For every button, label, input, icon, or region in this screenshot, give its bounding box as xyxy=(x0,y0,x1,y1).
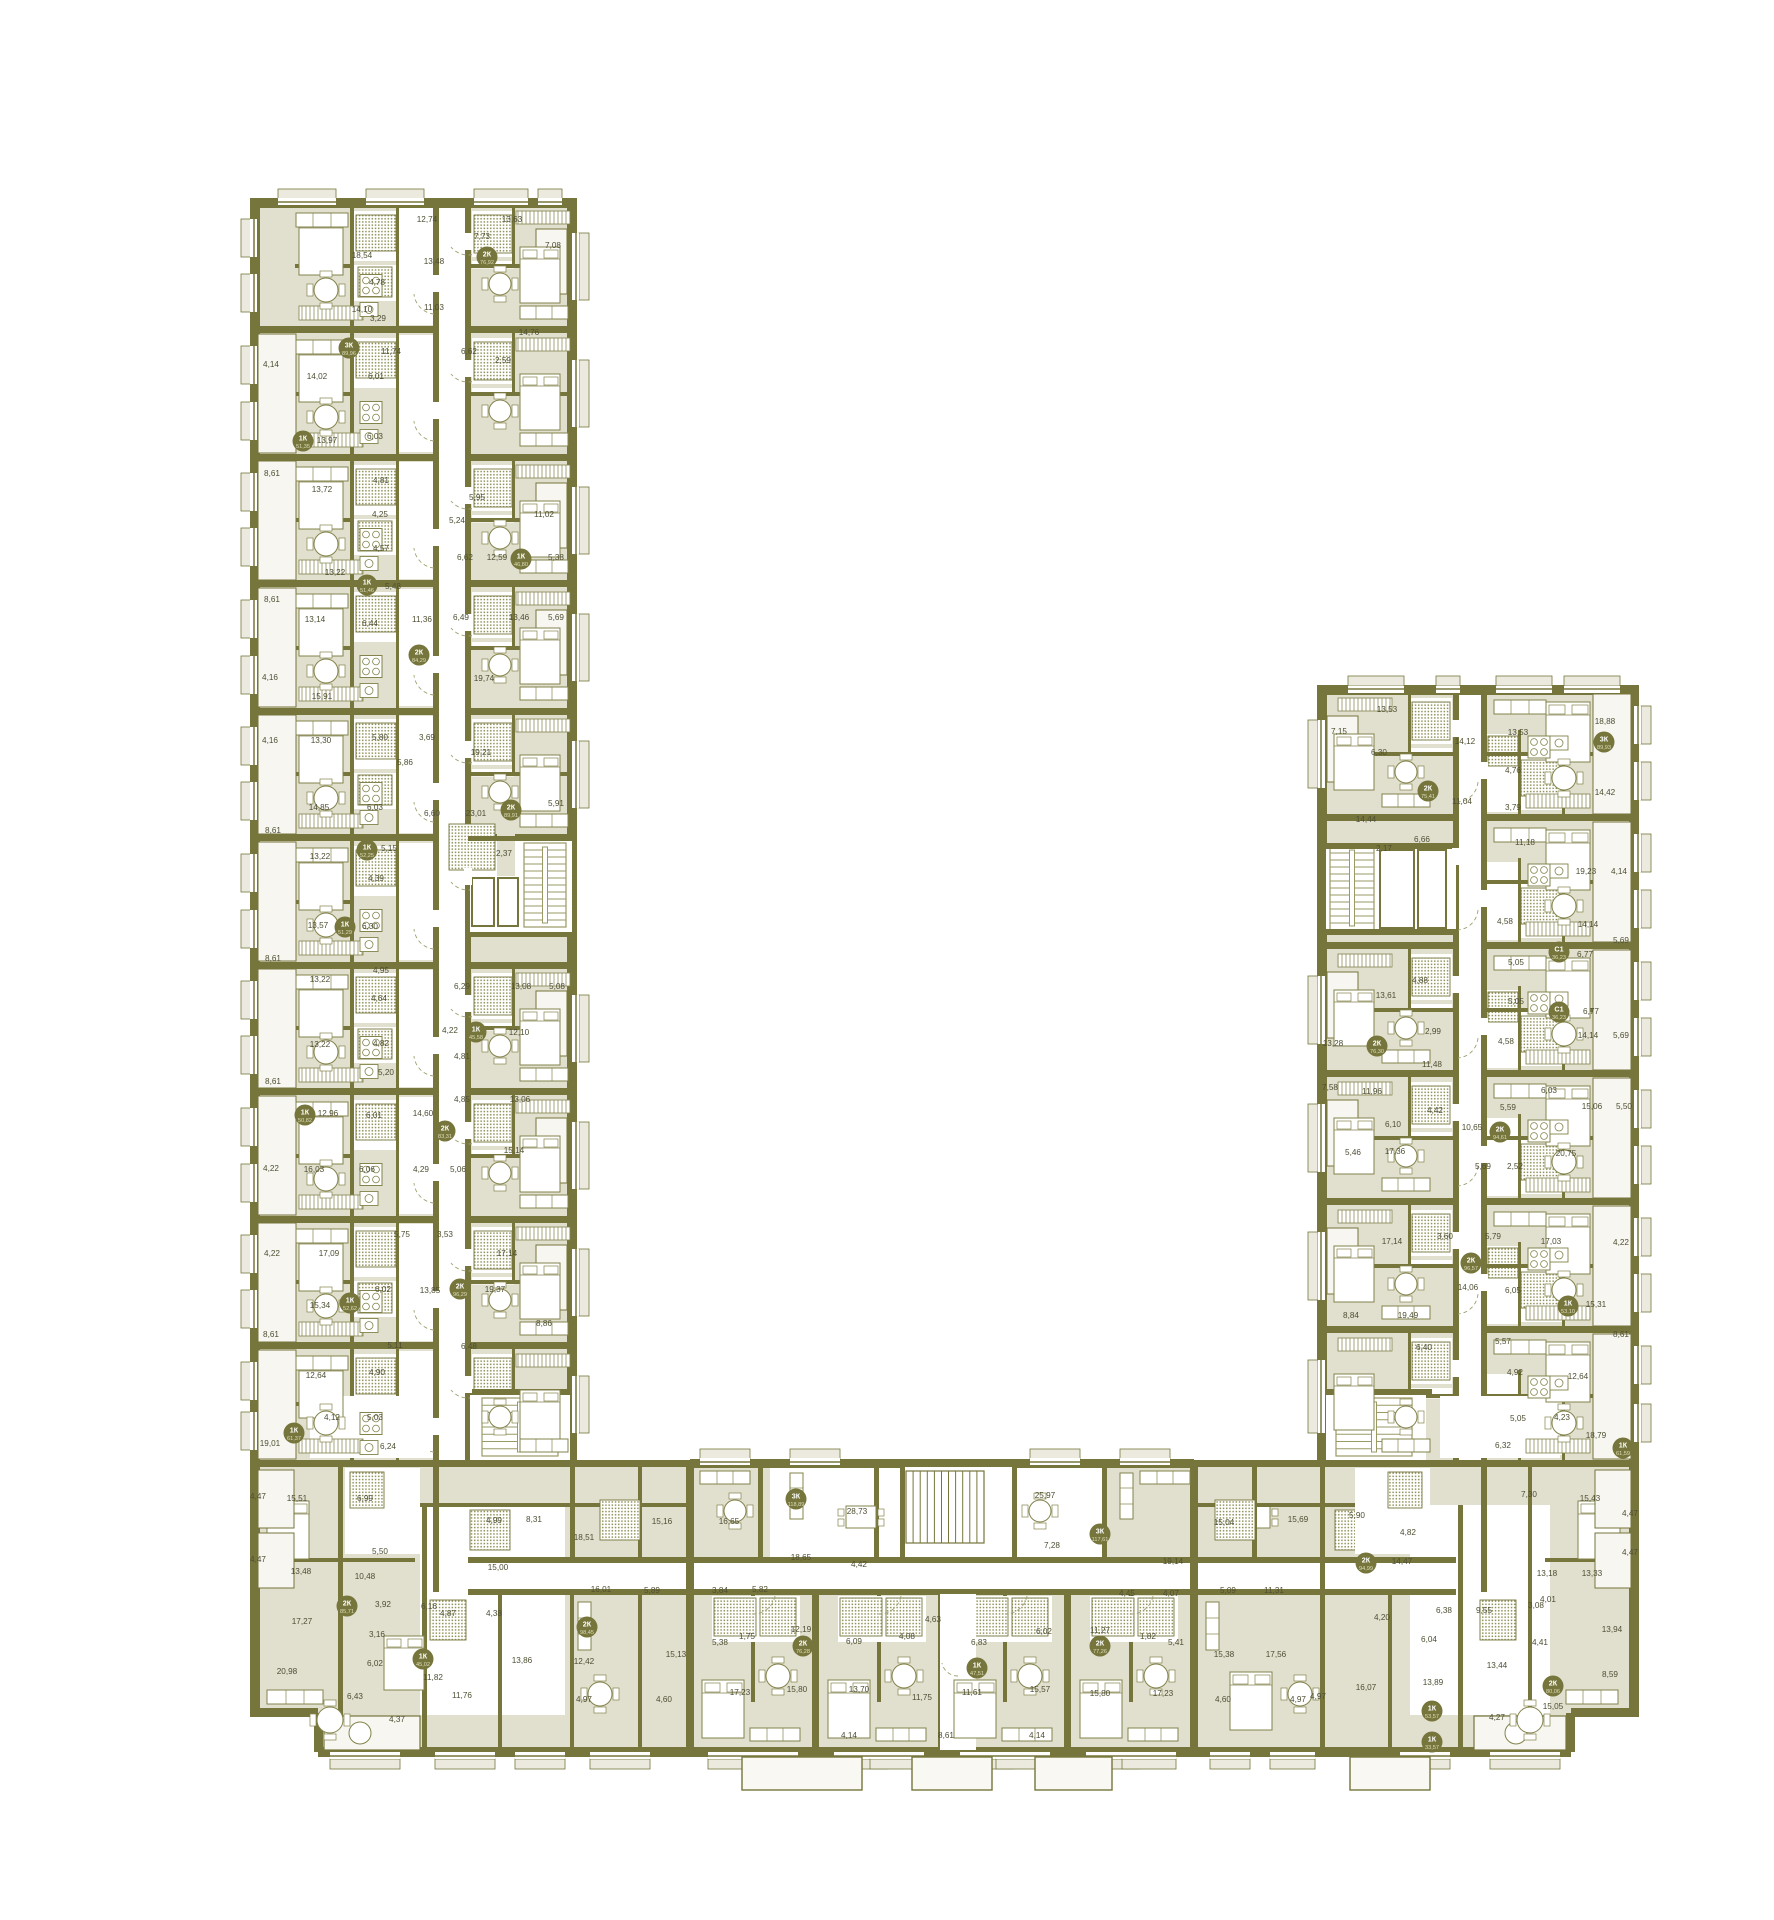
svg-text:4,27: 4,27 xyxy=(1489,1713,1505,1722)
svg-text:15,16: 15,16 xyxy=(652,1517,673,1526)
svg-text:1К: 1К xyxy=(290,1426,299,1435)
svg-text:13,08: 13,08 xyxy=(511,982,532,991)
svg-text:5,11: 5,11 xyxy=(387,1341,403,1350)
svg-text:6,49: 6,49 xyxy=(453,613,469,622)
svg-text:13,94: 13,94 xyxy=(1602,1625,1623,1634)
svg-text:14,14: 14,14 xyxy=(1578,920,1599,929)
svg-text:12,59: 12,59 xyxy=(487,553,508,562)
svg-text:28,73: 28,73 xyxy=(847,1507,868,1516)
svg-text:6,03: 6,03 xyxy=(1541,1086,1557,1095)
svg-text:14,12: 14,12 xyxy=(1455,737,1476,746)
svg-text:6,43: 6,43 xyxy=(347,1692,363,1701)
svg-text:4,22: 4,22 xyxy=(264,1249,280,1258)
svg-text:5,75: 5,75 xyxy=(394,1230,410,1239)
svg-text:51,29: 51,29 xyxy=(338,930,352,936)
svg-text:10,65: 10,65 xyxy=(1462,1123,1483,1132)
svg-text:4,22: 4,22 xyxy=(263,1164,279,1173)
svg-text:14,06: 14,06 xyxy=(1458,1283,1479,1292)
svg-text:4,63: 4,63 xyxy=(925,1615,941,1624)
svg-text:4,87: 4,87 xyxy=(440,1609,456,1618)
svg-text:76,92: 76,92 xyxy=(480,260,494,266)
svg-text:15,57: 15,57 xyxy=(1030,1685,1051,1694)
svg-text:6,04: 6,04 xyxy=(1421,1635,1437,1644)
svg-text:17,23: 17,23 xyxy=(730,1688,751,1697)
svg-text:3,79: 3,79 xyxy=(1505,803,1521,812)
svg-text:14,44: 14,44 xyxy=(1356,815,1377,824)
svg-text:77,26: 77,26 xyxy=(1093,1649,1107,1655)
svg-text:4,39: 4,39 xyxy=(368,874,384,883)
svg-text:11,31: 11,31 xyxy=(1264,1586,1284,1595)
svg-text:61,59: 61,59 xyxy=(1616,1451,1630,1457)
svg-text:13,53: 13,53 xyxy=(1508,728,1529,737)
svg-text:89,93: 89,93 xyxy=(1597,745,1611,751)
svg-text:6,02: 6,02 xyxy=(367,1659,383,1668)
svg-text:13,48: 13,48 xyxy=(424,257,445,266)
svg-text:4,25: 4,25 xyxy=(372,510,388,519)
svg-text:8,61: 8,61 xyxy=(263,1330,279,1339)
svg-text:2К: 2К xyxy=(1362,1556,1371,1565)
svg-text:4,41: 4,41 xyxy=(1532,1638,1548,1647)
svg-text:10,48: 10,48 xyxy=(355,1572,376,1581)
svg-text:17,36: 17,36 xyxy=(1385,1147,1406,1156)
svg-text:1К: 1К xyxy=(346,1296,355,1305)
svg-text:2К: 2К xyxy=(1549,1679,1558,1688)
svg-text:4,81: 4,81 xyxy=(373,476,389,485)
svg-text:11,03: 11,03 xyxy=(424,303,444,312)
svg-text:1,82: 1,82 xyxy=(1140,1632,1156,1641)
svg-text:2К: 2К xyxy=(583,1620,592,1629)
svg-text:4,14: 4,14 xyxy=(263,360,279,369)
svg-text:5,50: 5,50 xyxy=(1616,1102,1632,1111)
svg-text:7,15: 7,15 xyxy=(1331,727,1347,736)
svg-text:117,61: 117,61 xyxy=(1092,1537,1109,1543)
svg-text:4,85: 4,85 xyxy=(454,1095,470,1104)
svg-text:45,58: 45,58 xyxy=(469,1035,483,1041)
svg-text:5,89: 5,89 xyxy=(644,1586,660,1595)
svg-text:5,09: 5,09 xyxy=(1220,1586,1236,1595)
svg-text:6,40: 6,40 xyxy=(1416,1343,1432,1352)
svg-text:6,99: 6,99 xyxy=(357,1494,373,1503)
svg-text:3,16: 3,16 xyxy=(369,1630,385,1639)
svg-text:6,01: 6,01 xyxy=(368,372,384,381)
svg-text:6,10: 6,10 xyxy=(1385,1120,1401,1129)
svg-text:4,23: 4,23 xyxy=(1554,1413,1570,1422)
svg-text:15,38: 15,38 xyxy=(1214,1650,1235,1659)
svg-text:5,69: 5,69 xyxy=(1475,1162,1491,1171)
svg-text:20,75: 20,75 xyxy=(1556,1149,1577,1158)
svg-text:11,36: 11,36 xyxy=(412,615,432,624)
svg-text:11,48: 11,48 xyxy=(1422,1060,1442,1069)
svg-text:4,58: 4,58 xyxy=(1498,1037,1514,1046)
svg-text:12,64: 12,64 xyxy=(1568,1372,1589,1381)
svg-text:17,23: 17,23 xyxy=(1153,1689,1174,1698)
svg-text:4,42: 4,42 xyxy=(851,1560,867,1569)
svg-text:4,90: 4,90 xyxy=(369,1368,385,1377)
svg-text:4,07: 4,07 xyxy=(1163,1589,1179,1598)
svg-text:16,65: 16,65 xyxy=(719,1517,740,1526)
svg-text:13,18: 13,18 xyxy=(1537,1569,1558,1578)
svg-text:9,55: 9,55 xyxy=(1476,1606,1492,1615)
svg-text:5,06: 5,06 xyxy=(450,1165,466,1174)
svg-text:5,59: 5,59 xyxy=(1500,1103,1516,1112)
svg-text:5,91: 5,91 xyxy=(548,799,564,808)
svg-text:6,30: 6,30 xyxy=(1371,748,1387,757)
svg-text:36,23: 36,23 xyxy=(1552,1015,1566,1021)
svg-text:1К: 1К xyxy=(363,578,372,587)
svg-text:13,48: 13,48 xyxy=(291,1567,312,1576)
svg-text:4,29: 4,29 xyxy=(413,1165,429,1174)
svg-text:8,61: 8,61 xyxy=(1613,1330,1629,1339)
svg-text:19,74: 19,74 xyxy=(474,674,495,683)
svg-text:6,77: 6,77 xyxy=(1583,1007,1599,1016)
svg-text:4,78: 4,78 xyxy=(369,278,385,287)
svg-text:1К: 1К xyxy=(301,1108,310,1117)
svg-text:4,81: 4,81 xyxy=(454,1052,470,1061)
svg-text:5,46: 5,46 xyxy=(1345,1148,1361,1157)
svg-text:4,82: 4,82 xyxy=(1400,1528,1416,1537)
svg-text:76,28: 76,28 xyxy=(796,1649,810,1655)
svg-text:6,30: 6,30 xyxy=(362,922,378,931)
svg-text:50,82: 50,82 xyxy=(298,1118,312,1124)
svg-text:3,69: 3,69 xyxy=(419,733,435,742)
svg-text:2К: 2К xyxy=(1424,784,1433,793)
svg-text:16,03: 16,03 xyxy=(304,1165,325,1174)
svg-text:61,37: 61,37 xyxy=(287,1436,301,1442)
svg-text:2К: 2К xyxy=(441,1124,450,1133)
svg-text:4,14: 4,14 xyxy=(1611,867,1627,876)
svg-text:2,17: 2,17 xyxy=(1376,844,1392,853)
svg-text:15,43: 15,43 xyxy=(1580,1494,1601,1503)
svg-text:5,41: 5,41 xyxy=(1168,1638,1184,1647)
svg-text:7,28: 7,28 xyxy=(1044,1541,1060,1550)
svg-text:4,37: 4,37 xyxy=(389,1715,405,1724)
svg-text:76,30: 76,30 xyxy=(1370,1049,1384,1055)
svg-text:4,47: 4,47 xyxy=(250,1555,266,1564)
svg-text:3,60: 3,60 xyxy=(1437,1232,1453,1241)
svg-text:5,95: 5,95 xyxy=(469,493,485,502)
svg-text:2К: 2К xyxy=(1467,1256,1476,1265)
svg-text:16,07: 16,07 xyxy=(1356,1683,1377,1692)
svg-text:5,57: 5,57 xyxy=(1495,1337,1511,1346)
svg-text:4,60: 4,60 xyxy=(656,1695,672,1704)
svg-text:13,53: 13,53 xyxy=(1377,705,1398,714)
svg-text:8,31: 8,31 xyxy=(526,1515,542,1524)
svg-text:12,42: 12,42 xyxy=(574,1657,595,1666)
svg-text:6,32: 6,32 xyxy=(1495,1441,1511,1450)
svg-text:4,22: 4,22 xyxy=(1613,1238,1629,1247)
svg-text:12,96: 12,96 xyxy=(318,1109,339,1118)
svg-text:1К: 1К xyxy=(341,920,350,929)
svg-text:5,79: 5,79 xyxy=(1485,1232,1501,1241)
svg-text:17,03: 17,03 xyxy=(1541,1237,1562,1246)
svg-text:4,97: 4,97 xyxy=(1310,1692,1326,1701)
svg-text:15,05: 15,05 xyxy=(1543,1702,1564,1711)
svg-text:47,51: 47,51 xyxy=(970,1671,984,1677)
svg-text:45,02: 45,02 xyxy=(416,1662,430,1668)
svg-text:2,59: 2,59 xyxy=(495,356,511,365)
svg-text:4,14: 4,14 xyxy=(1029,1731,1045,1740)
svg-text:11,82: 11,82 xyxy=(423,1673,443,1682)
svg-text:5,90: 5,90 xyxy=(1349,1511,1365,1520)
svg-text:17,14: 17,14 xyxy=(1382,1237,1403,1246)
svg-text:15,69: 15,69 xyxy=(1288,1515,1309,1524)
svg-text:14,10: 14,10 xyxy=(352,305,373,314)
svg-text:6,60: 6,60 xyxy=(424,809,440,818)
svg-text:36,23: 36,23 xyxy=(1552,955,1566,961)
svg-text:19,01: 19,01 xyxy=(260,1439,281,1448)
svg-text:5,24: 5,24 xyxy=(449,516,465,525)
svg-text:2,52: 2,52 xyxy=(1507,1162,1523,1171)
svg-text:6,62: 6,62 xyxy=(457,553,473,562)
svg-text:13,46: 13,46 xyxy=(509,613,530,622)
svg-text:15,06: 15,06 xyxy=(1582,1102,1603,1111)
svg-text:6,62: 6,62 xyxy=(461,347,477,356)
svg-text:17,27: 17,27 xyxy=(292,1617,313,1626)
svg-text:19,21: 19,21 xyxy=(471,748,492,757)
svg-text:8,61: 8,61 xyxy=(265,826,281,835)
svg-text:3К: 3К xyxy=(345,341,354,350)
svg-text:3,53: 3,53 xyxy=(437,1230,453,1239)
svg-text:5,38: 5,38 xyxy=(548,553,564,562)
svg-text:5,69: 5,69 xyxy=(1613,1031,1629,1040)
svg-text:5,05: 5,05 xyxy=(1508,997,1524,1006)
svg-text:15,34: 15,34 xyxy=(310,1301,331,1310)
svg-text:13,89: 13,89 xyxy=(1423,1678,1444,1687)
svg-text:6,38: 6,38 xyxy=(1436,1606,1452,1615)
svg-text:3К: 3К xyxy=(1096,1527,1105,1536)
svg-text:18,54: 18,54 xyxy=(352,251,373,260)
svg-text:4,08: 4,08 xyxy=(899,1632,915,1641)
svg-text:13,28: 13,28 xyxy=(1323,1039,1344,1048)
svg-text:7,08: 7,08 xyxy=(545,241,561,250)
svg-text:4,95: 4,95 xyxy=(373,966,389,975)
svg-text:8,61: 8,61 xyxy=(265,954,281,963)
svg-text:6,29: 6,29 xyxy=(454,982,470,991)
svg-text:8,61: 8,61 xyxy=(938,1731,954,1740)
svg-text:13,57: 13,57 xyxy=(308,921,329,930)
svg-text:1К: 1К xyxy=(1619,1441,1628,1450)
svg-text:51,35: 51,35 xyxy=(296,444,310,450)
svg-text:5,38: 5,38 xyxy=(712,1638,728,1647)
svg-text:18,88: 18,88 xyxy=(1595,717,1616,726)
svg-text:1К: 1К xyxy=(299,434,308,443)
svg-text:15,00: 15,00 xyxy=(488,1563,509,1572)
svg-text:23,01: 23,01 xyxy=(466,809,487,818)
svg-text:5,82: 5,82 xyxy=(752,1585,768,1594)
svg-text:14,76: 14,76 xyxy=(519,328,540,337)
svg-text:4,20: 4,20 xyxy=(1374,1613,1390,1622)
svg-text:3,29: 3,29 xyxy=(370,314,386,323)
svg-text:15,14: 15,14 xyxy=(504,1146,525,1155)
svg-text:4,38: 4,38 xyxy=(486,1609,502,1618)
svg-text:3,84: 3,84 xyxy=(712,1586,728,1595)
svg-text:6,16: 6,16 xyxy=(421,1602,437,1611)
svg-text:13,06: 13,06 xyxy=(510,1095,531,1104)
svg-text:2К: 2К xyxy=(483,250,492,259)
svg-text:2,99: 2,99 xyxy=(1425,1027,1441,1036)
svg-text:6,03: 6,03 xyxy=(367,803,383,812)
svg-text:4,16: 4,16 xyxy=(262,736,278,745)
svg-text:51,46: 51,46 xyxy=(360,588,374,594)
svg-text:20,98: 20,98 xyxy=(277,1667,298,1676)
svg-text:14,02: 14,02 xyxy=(307,372,328,381)
svg-text:16,01: 16,01 xyxy=(591,1585,612,1594)
svg-text:12,64: 12,64 xyxy=(306,1371,327,1380)
svg-text:15,31: 15,31 xyxy=(1586,1300,1607,1309)
svg-text:94,99: 94,99 xyxy=(1359,1566,1373,1572)
svg-text:5,15: 5,15 xyxy=(381,844,397,853)
svg-text:1К: 1К xyxy=(472,1025,481,1034)
svg-text:2К: 2К xyxy=(1373,1039,1382,1048)
svg-text:4,57: 4,57 xyxy=(373,544,389,553)
svg-text:17,56: 17,56 xyxy=(1266,1650,1287,1659)
svg-text:5,80: 5,80 xyxy=(372,733,388,742)
svg-text:89,96: 89,96 xyxy=(342,351,356,357)
svg-text:8,84: 8,84 xyxy=(1343,1311,1359,1320)
svg-text:6,06: 6,06 xyxy=(359,1165,375,1174)
svg-text:15,80: 15,80 xyxy=(787,1685,808,1694)
svg-text:1К: 1К xyxy=(973,1661,982,1670)
svg-text:18,65: 18,65 xyxy=(791,1553,812,1562)
svg-text:6,09: 6,09 xyxy=(846,1637,862,1646)
svg-text:13,22: 13,22 xyxy=(325,568,346,577)
svg-text:1К: 1К xyxy=(1428,1704,1437,1713)
svg-text:5,86: 5,86 xyxy=(397,758,413,767)
svg-text:5,69: 5,69 xyxy=(1613,936,1629,945)
svg-text:4,97: 4,97 xyxy=(1290,1695,1306,1704)
svg-text:4,64: 4,64 xyxy=(371,994,387,1003)
svg-text:5,50: 5,50 xyxy=(372,1547,388,1556)
svg-text:17,14: 17,14 xyxy=(497,1249,518,1258)
svg-text:4,92: 4,92 xyxy=(1507,1368,1523,1377)
svg-text:19,23: 19,23 xyxy=(1576,867,1597,876)
svg-text:8,61: 8,61 xyxy=(264,595,280,604)
svg-text:8,61: 8,61 xyxy=(264,469,280,478)
svg-text:4,12: 4,12 xyxy=(324,1413,340,1422)
svg-text:2К: 2К xyxy=(415,648,424,657)
svg-text:4,22: 4,22 xyxy=(442,1026,458,1035)
svg-text:1,75: 1,75 xyxy=(739,1632,755,1641)
svg-text:5,48: 5,48 xyxy=(385,582,401,591)
svg-text:3К: 3К xyxy=(792,1492,801,1501)
svg-text:2К: 2К xyxy=(507,803,516,812)
svg-text:14,42: 14,42 xyxy=(1595,788,1616,797)
svg-text:4,14: 4,14 xyxy=(841,1731,857,1740)
svg-text:19,37: 19,37 xyxy=(485,1285,506,1294)
svg-text:4,76: 4,76 xyxy=(1505,766,1521,775)
svg-text:52,62: 52,62 xyxy=(343,1306,357,1312)
svg-text:4,47: 4,47 xyxy=(250,1492,266,1501)
svg-text:2К: 2К xyxy=(343,1599,352,1608)
svg-text:5,05: 5,05 xyxy=(1508,958,1524,967)
svg-text:96,57: 96,57 xyxy=(1464,1266,1478,1272)
svg-text:7,30: 7,30 xyxy=(1521,1490,1537,1499)
svg-text:13,30: 13,30 xyxy=(311,736,332,745)
svg-text:14,47: 14,47 xyxy=(1392,1557,1413,1566)
svg-text:4,88: 4,88 xyxy=(1412,976,1428,985)
svg-text:2,37: 2,37 xyxy=(496,849,512,858)
svg-text:19,49: 19,49 xyxy=(1398,1311,1419,1320)
svg-text:84,29: 84,29 xyxy=(412,658,426,664)
svg-text:6,02: 6,02 xyxy=(1036,1627,1052,1636)
svg-text:4,82: 4,82 xyxy=(373,1039,389,1048)
svg-text:13,61: 13,61 xyxy=(1376,991,1397,1000)
svg-text:2К: 2К xyxy=(1096,1639,1105,1648)
svg-text:1К: 1К xyxy=(517,552,526,561)
svg-text:13,97: 13,97 xyxy=(317,436,338,445)
svg-text:11,02: 11,02 xyxy=(534,510,554,519)
svg-text:98,45: 98,45 xyxy=(580,1630,594,1636)
svg-text:15,13: 15,13 xyxy=(666,1650,687,1659)
svg-text:2К: 2К xyxy=(1496,1125,1505,1134)
svg-text:6,77: 6,77 xyxy=(1577,950,1593,959)
svg-text:4,01: 4,01 xyxy=(1540,1595,1556,1604)
svg-text:3К: 3К xyxy=(1600,735,1609,744)
svg-text:19,14: 19,14 xyxy=(1163,1557,1184,1566)
svg-text:6,66: 6,66 xyxy=(1414,835,1430,844)
svg-text:6,01: 6,01 xyxy=(366,1111,382,1120)
svg-text:96,29: 96,29 xyxy=(453,1292,467,1298)
svg-text:8,61: 8,61 xyxy=(265,1077,281,1086)
svg-text:5,03: 5,03 xyxy=(367,1413,383,1422)
svg-text:11,75: 11,75 xyxy=(912,1693,932,1702)
svg-text:18,51: 18,51 xyxy=(574,1533,595,1542)
svg-text:3,92: 3,92 xyxy=(375,1600,391,1609)
svg-text:15,91: 15,91 xyxy=(312,692,333,701)
svg-text:11,74: 11,74 xyxy=(381,347,401,356)
svg-text:15,51: 15,51 xyxy=(287,1494,308,1503)
svg-text:4,99: 4,99 xyxy=(486,1516,502,1525)
svg-text:2К: 2К xyxy=(456,1282,465,1291)
svg-text:13,22: 13,22 xyxy=(310,1040,331,1049)
svg-text:94,61: 94,61 xyxy=(1493,1135,1507,1141)
svg-text:13,70: 13,70 xyxy=(849,1685,870,1694)
svg-text:14,85: 14,85 xyxy=(309,803,330,812)
svg-text:14,14: 14,14 xyxy=(1578,1031,1599,1040)
svg-text:11,18: 11,18 xyxy=(1515,838,1535,847)
svg-text:5,69: 5,69 xyxy=(548,613,564,622)
svg-text:52,25: 52,25 xyxy=(360,853,374,859)
svg-text:С1: С1 xyxy=(1554,1005,1563,1014)
svg-text:4,45: 4,45 xyxy=(1119,1589,1135,1598)
svg-text:13,22: 13,22 xyxy=(310,975,331,984)
svg-text:15,80: 15,80 xyxy=(1090,1689,1111,1698)
svg-text:33,57: 33,57 xyxy=(1425,1745,1439,1751)
svg-text:7,73: 7,73 xyxy=(474,232,490,241)
svg-text:С1: С1 xyxy=(1554,945,1563,954)
svg-text:25,97: 25,97 xyxy=(1035,1491,1056,1500)
svg-text:17,09: 17,09 xyxy=(319,1249,340,1258)
svg-text:13,72: 13,72 xyxy=(312,485,333,494)
svg-text:13,86: 13,86 xyxy=(512,1656,533,1665)
svg-text:6,83: 6,83 xyxy=(971,1638,987,1647)
svg-text:12,74: 12,74 xyxy=(417,215,438,224)
svg-text:4,42: 4,42 xyxy=(1427,1106,1443,1115)
svg-text:4,16: 4,16 xyxy=(262,673,278,682)
svg-text:53,10: 53,10 xyxy=(1561,1309,1575,1315)
svg-text:80,06: 80,06 xyxy=(1546,1689,1560,1695)
svg-text:12,19: 12,19 xyxy=(791,1625,812,1634)
svg-text:11,76: 11,76 xyxy=(452,1691,472,1700)
svg-text:4,58: 4,58 xyxy=(1497,917,1513,926)
svg-text:13,14: 13,14 xyxy=(305,615,326,624)
svg-text:6,05: 6,05 xyxy=(1505,1286,1521,1295)
svg-text:75,41: 75,41 xyxy=(1421,794,1435,800)
svg-text:11,27: 11,27 xyxy=(1090,1626,1110,1635)
svg-text:13,63: 13,63 xyxy=(502,215,523,224)
svg-text:8,86: 8,86 xyxy=(536,1319,552,1328)
svg-text:11,96: 11,96 xyxy=(1362,1087,1382,1096)
